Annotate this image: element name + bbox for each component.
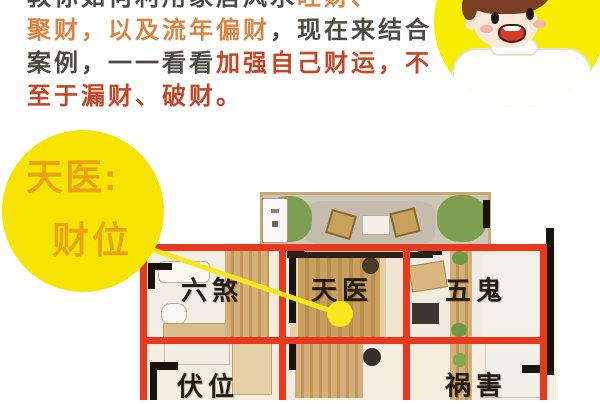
intro-line-2-dark: ，现在来结合 xyxy=(270,17,432,44)
sector-label-wugui: 五鬼 xyxy=(445,271,507,308)
sector-label-tianyi: 天医 xyxy=(311,271,373,308)
sector-label-huohai: 祸害 xyxy=(445,366,507,403)
wealth-circle-title: 天医: xyxy=(26,147,118,201)
grid-line-horizontal-middle xyxy=(140,337,547,344)
intro-line-3: 案例，一一看看加强自己财运，不 xyxy=(27,47,467,80)
round-stool-bottom xyxy=(363,348,381,366)
avatar-eye-left xyxy=(491,12,499,24)
wall-segment xyxy=(289,251,296,323)
intro-line-3-red: 加强自己财运，不 xyxy=(216,50,432,77)
wealth-circle-subtitle: 财位 xyxy=(52,210,132,264)
wall-segment-right xyxy=(546,228,554,375)
ac-unit-dot xyxy=(272,221,278,227)
intro-line-4-red: 至于漏财、破财。 xyxy=(27,83,243,110)
sector-label-liusha: 六煞 xyxy=(181,271,243,308)
plant-dot-2 xyxy=(451,323,467,337)
wealth-circle-callout: 天医: 财位 xyxy=(2,130,164,292)
avatar-blush-left xyxy=(480,25,493,33)
wardrobe xyxy=(295,340,363,398)
balcony-table xyxy=(362,215,390,235)
ac-unit-marks xyxy=(271,209,279,213)
intro-line-1-dark: 教你如何利用家居风水 xyxy=(27,0,297,11)
grid-line-vertical-1 xyxy=(279,244,286,400)
desk xyxy=(408,260,448,292)
plant-dot-1 xyxy=(452,251,468,265)
intro-paragraph: 教你如何利用家居风水旺财、 聚财，以及流年偏财，现在来结合 案例，一一看看加强自… xyxy=(27,0,467,113)
avatar-shirt xyxy=(452,48,592,108)
grid-line-horizontal-top xyxy=(140,244,547,251)
fengshui-infographic: { "colors": { "accent_yellow": "#F6E400"… xyxy=(0,0,600,400)
avatar-blush-right xyxy=(533,20,546,28)
wall-segment xyxy=(148,263,155,289)
ac-unit xyxy=(262,198,288,243)
avatar-teeth xyxy=(503,26,521,31)
sector-label-fuwei: 伏位 xyxy=(177,367,239,404)
wall-segment-balcony xyxy=(287,252,433,258)
intro-line-2-orange: 聚财，以及流年偏财 xyxy=(27,17,270,44)
intro-line-4: 至于漏财、破财。 xyxy=(27,80,467,113)
avatar-eye-right xyxy=(526,8,534,20)
intro-line-1: 教你如何利用家居风水旺财、 xyxy=(27,0,467,14)
wall-segment xyxy=(483,200,490,228)
avatar xyxy=(434,0,600,108)
tv-cabinet xyxy=(412,303,439,324)
wall-segment xyxy=(150,362,157,400)
intro-line-1-orange: 旺财、 xyxy=(297,0,378,11)
balcony-plant-right xyxy=(437,195,487,242)
intro-line-3-dark: 案例，一一看看 xyxy=(27,50,216,77)
avatar-mouth xyxy=(498,24,526,43)
intro-line-2: 聚财，以及流年偏财，现在来结合 xyxy=(27,14,467,47)
floorplan: 六煞 天医 五鬼 伏位 祸害 xyxy=(140,185,556,400)
grid-line-vertical-2 xyxy=(403,244,410,400)
grid-line-vertical-right xyxy=(540,244,547,400)
